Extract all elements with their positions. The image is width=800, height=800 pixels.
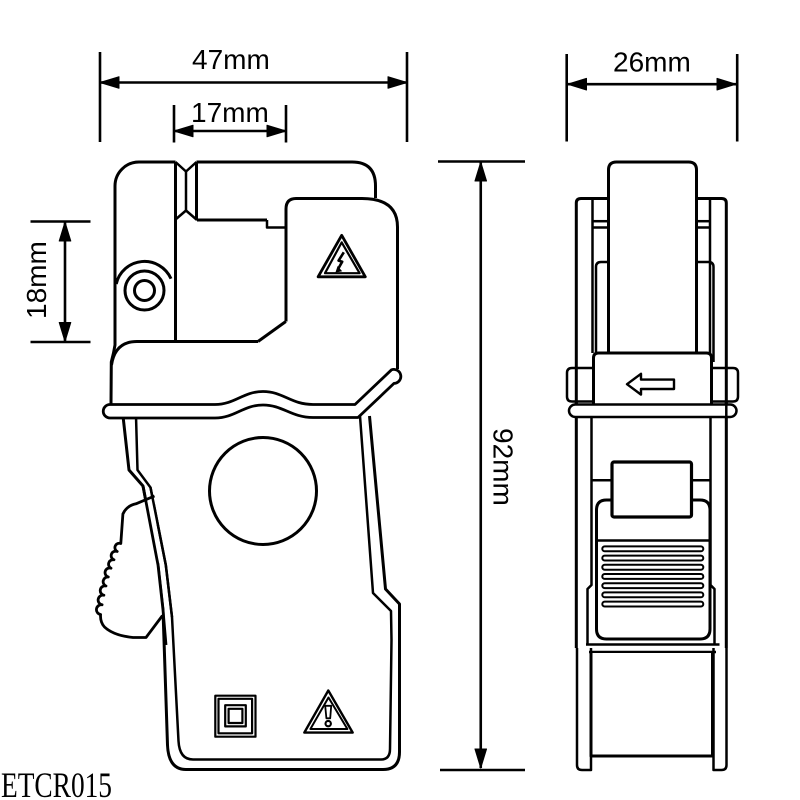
svg-text:17mm: 17mm bbox=[191, 97, 269, 128]
svg-text:ETCR015: ETCR015 bbox=[1, 765, 112, 800]
svg-text:26mm: 26mm bbox=[613, 47, 691, 78]
svg-text:47mm: 47mm bbox=[192, 44, 270, 75]
svg-text:92mm: 92mm bbox=[488, 428, 519, 506]
svg-text:18mm: 18mm bbox=[21, 241, 52, 319]
